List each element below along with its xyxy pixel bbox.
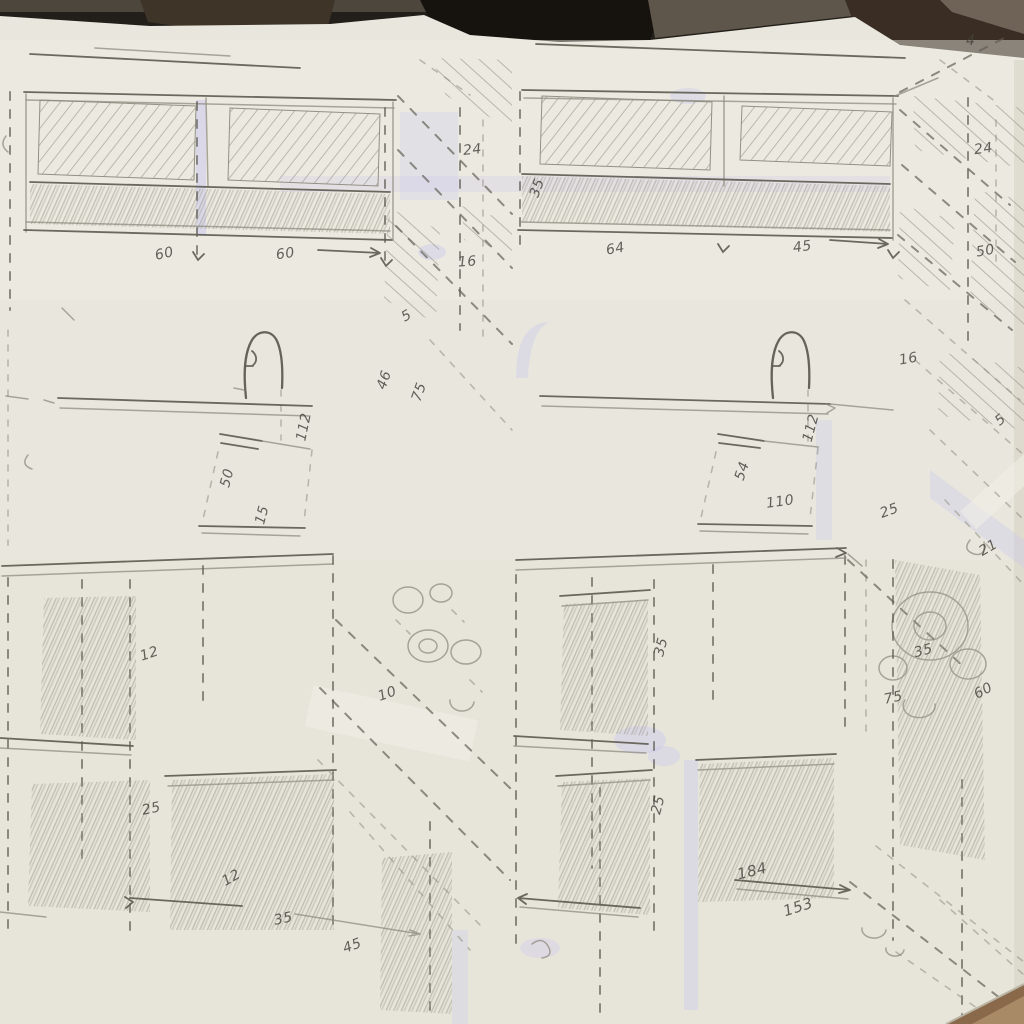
dimension-label: 60 <box>275 245 296 263</box>
dimension-label: 4 <box>966 33 975 49</box>
dimension-label: 16 <box>457 253 477 270</box>
dimension-label: 16 <box>898 349 919 368</box>
sketch-drawing <box>0 0 1024 1024</box>
photographed-kitchen-sketch: 6060241651124675501512102512354564454245… <box>0 0 1024 1024</box>
dimension-label: 24 <box>973 140 994 158</box>
dimension-label: 24 <box>462 141 482 159</box>
dimension-label: 50 <box>975 241 996 260</box>
dimension-label: 64 <box>605 239 626 258</box>
dimension-label: 45 <box>792 238 813 256</box>
